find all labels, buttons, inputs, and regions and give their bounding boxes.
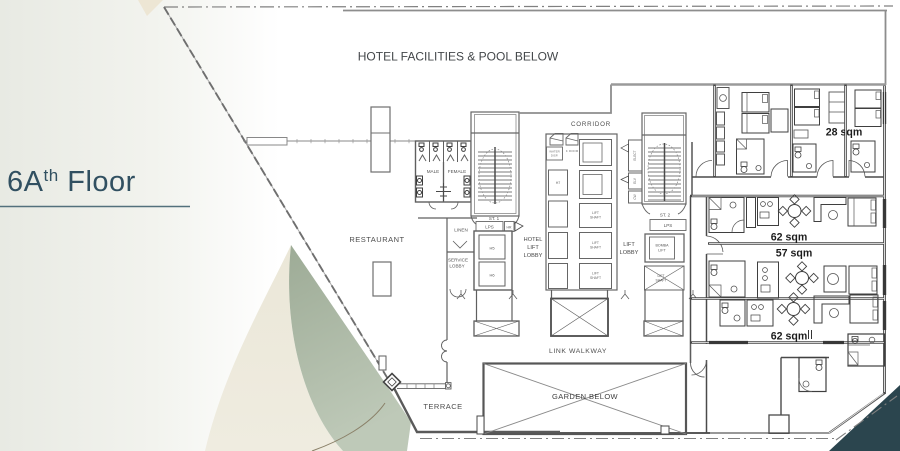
svg-text:LOBBY: LOBBY <box>620 250 639 256</box>
svg-text:LIFT: LIFT <box>592 272 599 276</box>
svg-text:LIFT: LIFT <box>592 241 599 245</box>
svg-text:LINEN: LINEN <box>454 228 468 233</box>
svg-text:SHAFT: SHAFT <box>590 216 601 220</box>
svg-text:CORRIDOR: CORRIDOR <box>571 121 611 128</box>
svg-text:LIFT: LIFT <box>658 274 665 278</box>
svg-text:H5: H5 <box>489 246 495 251</box>
svg-text:H6: H6 <box>489 273 495 278</box>
svg-text:HOTEL: HOTEL <box>524 237 543 243</box>
svg-text:LIFT: LIFT <box>623 242 635 248</box>
svg-text:SERVICE: SERVICE <box>448 258 468 263</box>
svg-text:SHAFT: SHAFT <box>655 279 666 283</box>
svg-text:FEMALE: FEMALE <box>448 169 466 174</box>
svg-text:MALE: MALE <box>427 169 440 174</box>
svg-text:ELV: ELV <box>633 177 637 184</box>
svg-text:ELECT: ELECT <box>633 150 637 160</box>
svg-text:H7: H7 <box>556 181 561 185</box>
svg-text:6Ath Floor: 6Ath Floor <box>7 166 136 198</box>
svg-text:62 sqm: 62 sqm <box>771 331 808 343</box>
svg-text:TERRACE: TERRACE <box>423 402 462 411</box>
svg-text:RESTAURANT: RESTAURANT <box>349 235 404 244</box>
svg-text:LIFT: LIFT <box>592 211 599 215</box>
svg-text:HOTEL FACILITIES & POOL BELOW: HOTEL FACILITIES & POOL BELOW <box>358 50 559 64</box>
svg-text:LPS: LPS <box>485 225 494 230</box>
svg-text:57 sqm: 57 sqm <box>776 248 813 260</box>
svg-text:ST. 2: ST. 2 <box>660 213 671 218</box>
svg-text:LINK WALKWAY: LINK WALKWAY <box>549 348 607 355</box>
svg-text:SHAFT: SHAFT <box>590 246 601 250</box>
svg-text:LOBBY: LOBBY <box>524 253 543 259</box>
svg-text:LIFT: LIFT <box>527 245 539 251</box>
svg-text:GARDEN BELOW: GARDEN BELOW <box>552 392 619 401</box>
svg-text:DISP.: DISP. <box>551 154 559 158</box>
svg-text:28 sqm: 28 sqm <box>826 127 863 139</box>
svg-text:HR: HR <box>507 226 512 230</box>
svg-text:SHAFT: SHAFT <box>590 276 601 280</box>
svg-text:LPS: LPS <box>664 223 673 228</box>
svg-text:F. ROOM: F. ROOM <box>566 149 579 153</box>
svg-text:CW: CW <box>633 194 637 199</box>
svg-text:ST. 1: ST. 1 <box>489 216 500 221</box>
svg-text:LIFT: LIFT <box>658 249 666 253</box>
svg-text:62 sqm: 62 sqm <box>771 232 808 244</box>
svg-text:LOBBY: LOBBY <box>449 264 464 269</box>
svg-text:BOMBA: BOMBA <box>656 244 670 248</box>
